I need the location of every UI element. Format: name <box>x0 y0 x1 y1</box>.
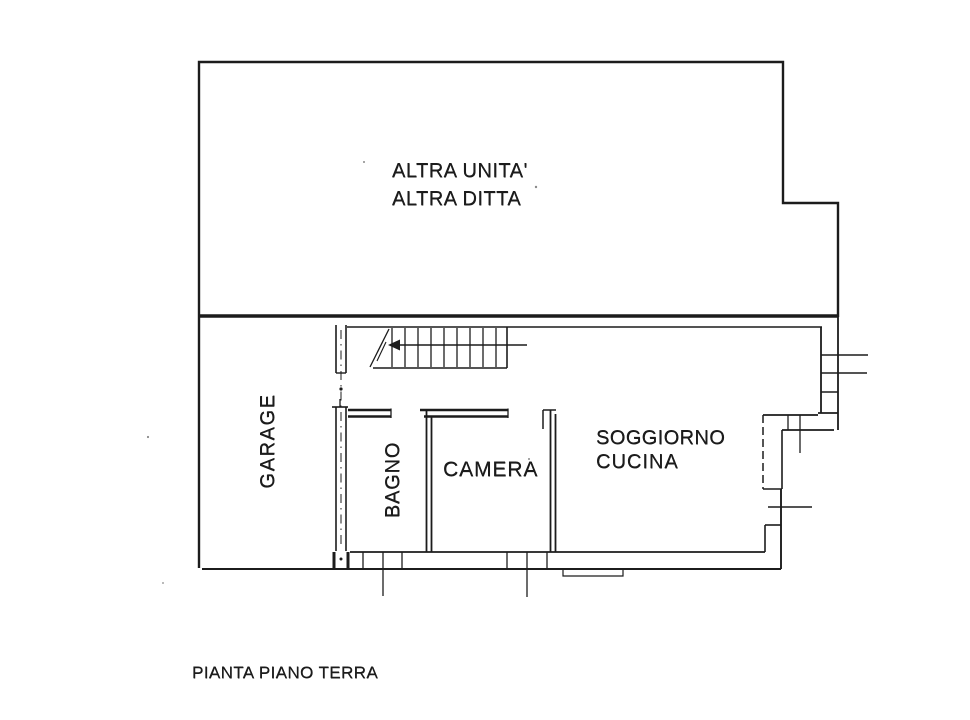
floor-plan-canvas: ALTRA UNITA' ALTRA DITTA GARAGE BAGNO CA… <box>0 0 970 720</box>
staircase <box>370 327 527 368</box>
right-window-upper <box>818 317 868 430</box>
soggiorno-wall <box>543 410 556 552</box>
plan-caption: PIANTA PIANO TERRA <box>192 664 378 681</box>
label-bagno: BAGNO <box>383 410 403 550</box>
right-wall-lower <box>763 415 812 569</box>
label-cucina: CUCINA <box>596 452 679 472</box>
label-camera: CAMERA <box>443 459 538 480</box>
garage-party-wall <box>332 325 348 569</box>
stair-arrowhead <box>388 340 400 351</box>
label-soggiorno: SOGGIORNO <box>596 428 725 448</box>
bottom-wall <box>202 552 781 597</box>
label-garage: GARAGE <box>258 371 278 511</box>
stair-break-line <box>370 329 389 367</box>
label-altra-unita-line1: ALTRA UNITA' <box>392 161 528 181</box>
floor-plan-drawing <box>0 0 970 720</box>
right-window-band <box>763 415 834 453</box>
label-altra-unita-line2: ALTRA DITTA <box>392 189 521 209</box>
dividing-wall <box>199 316 838 327</box>
